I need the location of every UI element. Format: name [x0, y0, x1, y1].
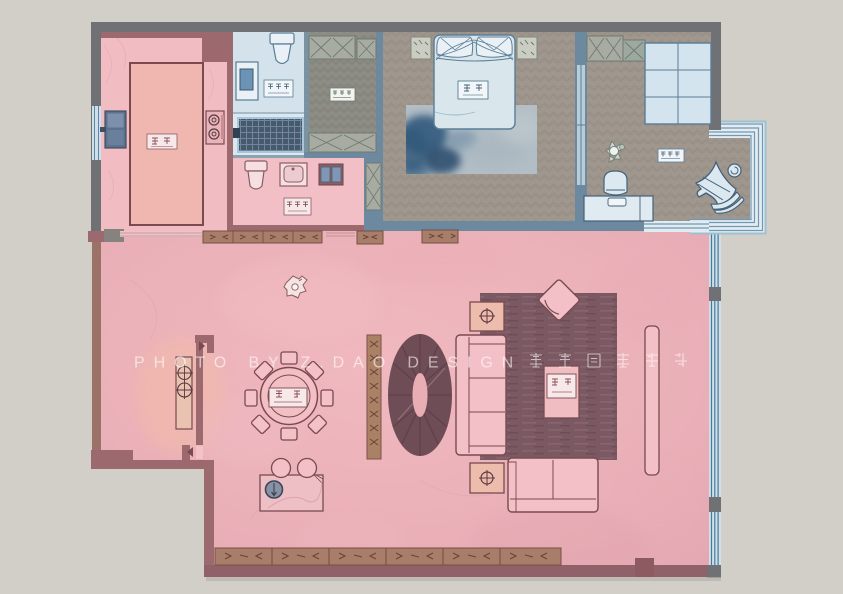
svg-text:PHOTO BY Z.DAO DESIGN: PHOTO BY Z.DAO DESIGN [134, 355, 522, 372]
